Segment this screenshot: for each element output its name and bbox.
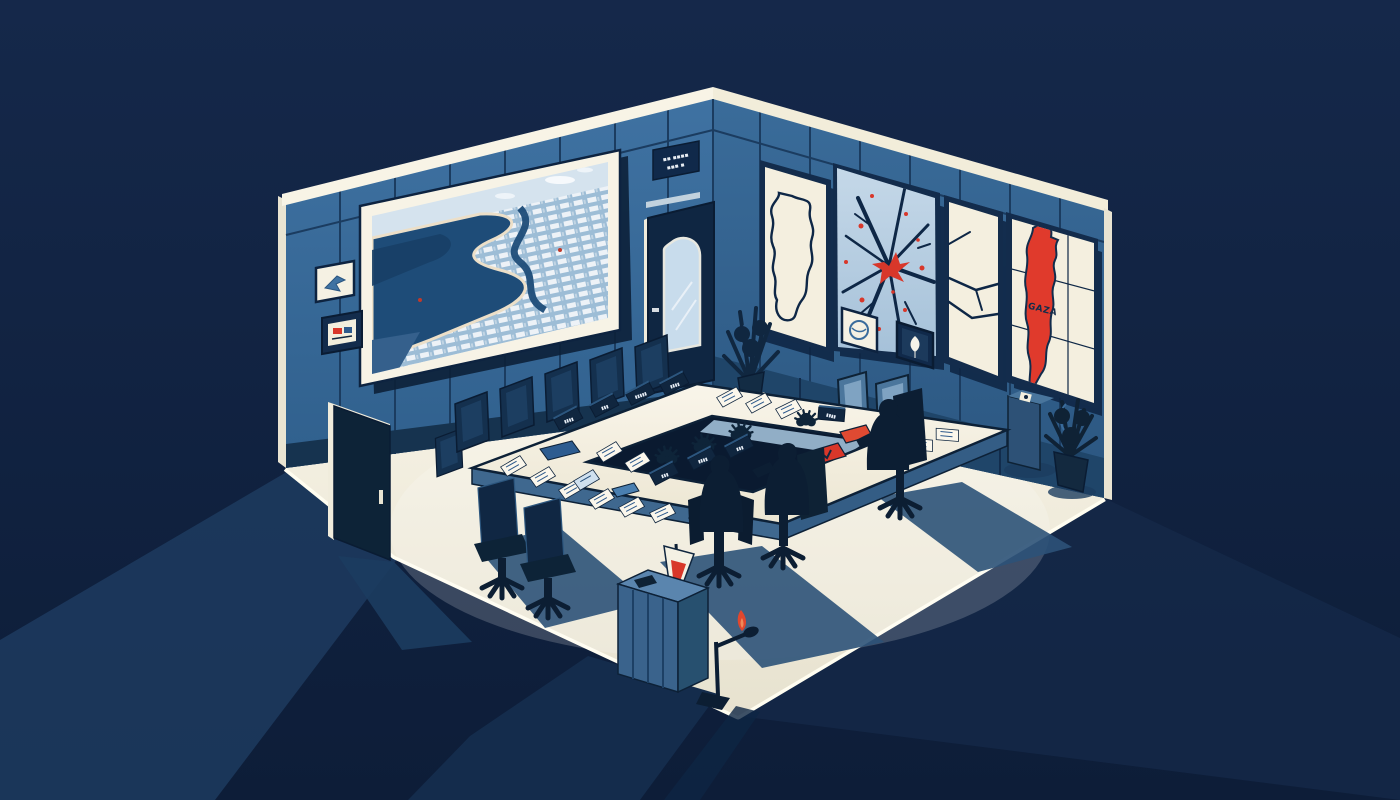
front-left-door — [328, 402, 390, 560]
podium-side — [678, 588, 708, 692]
left-wall-edge-trim — [278, 196, 286, 468]
map-panel-outline — [760, 160, 834, 362]
emblem-blue-mark — [344, 327, 352, 333]
front-door-trim — [328, 402, 334, 540]
situation-room-illustration: ▪▪ ▪▪▪▪ ▪▪▪ ▪ — [0, 0, 1400, 800]
front-door-handle — [379, 490, 383, 504]
map-panel-fracture — [944, 195, 1007, 392]
front-door-panel — [334, 406, 390, 560]
emblem-red-mark — [333, 328, 342, 334]
podium — [618, 570, 708, 692]
small-frame-sketch — [316, 261, 354, 302]
corner-door-handle — [652, 308, 659, 312]
map-panel-gaza: GAZA — [1005, 212, 1105, 416]
scene-canvas: ▪▪ ▪▪▪▪ ▪▪▪ ▪ — [0, 0, 1400, 800]
small-frame-emblem — [322, 311, 362, 354]
right-wall-edge-trim — [1104, 208, 1112, 500]
